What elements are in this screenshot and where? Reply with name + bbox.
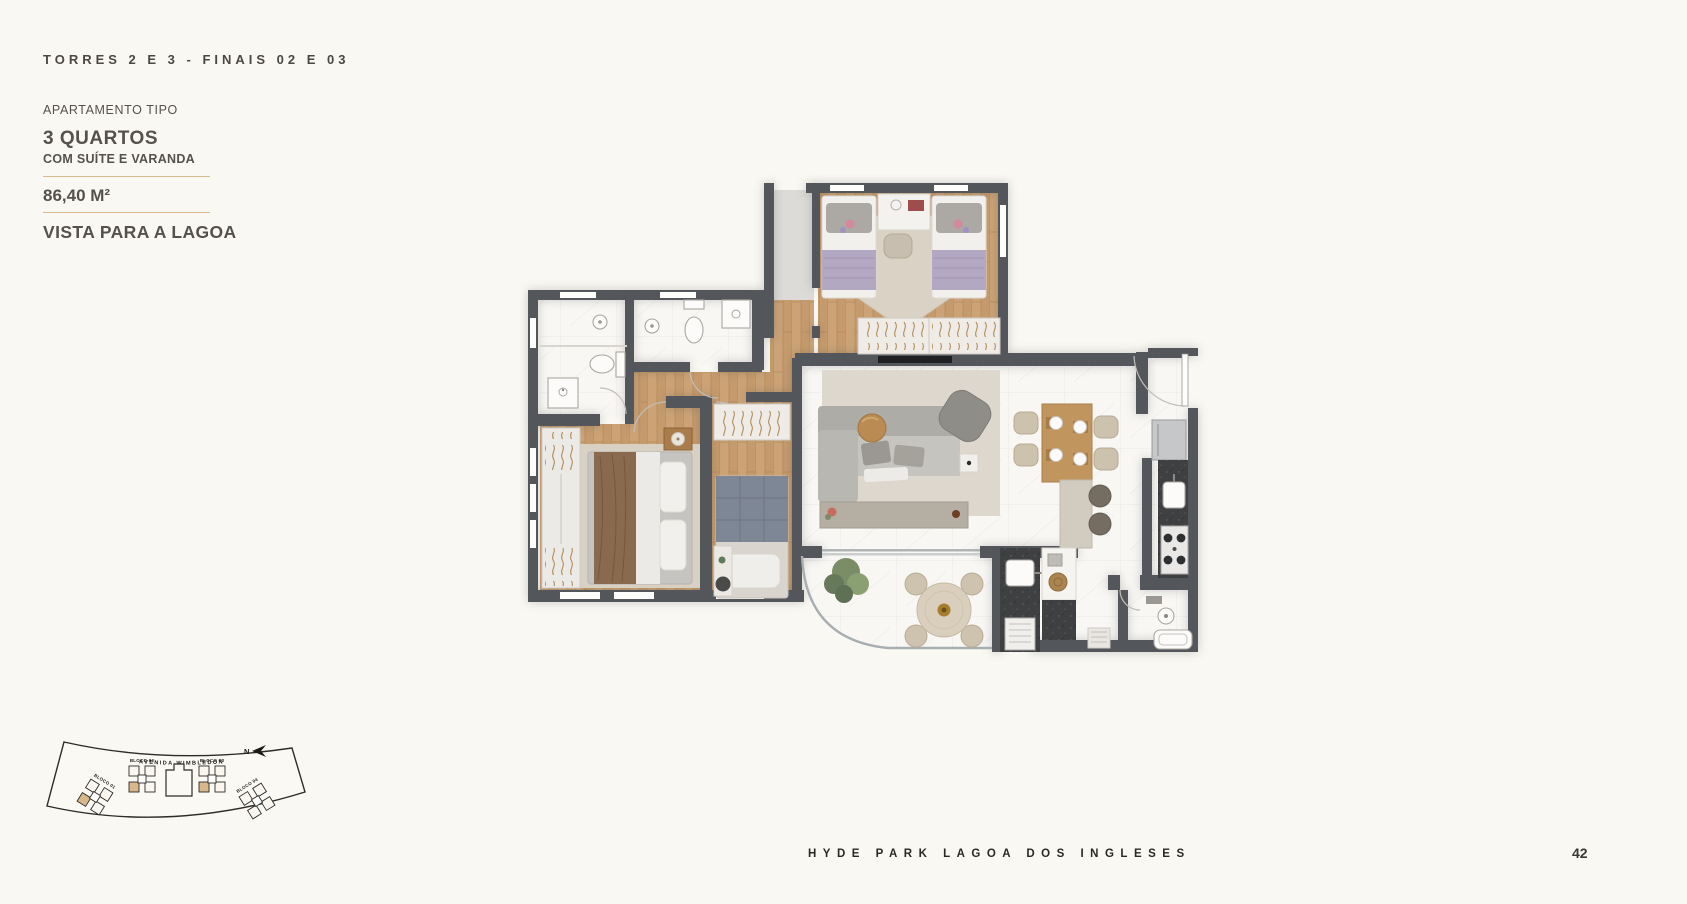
washer (1005, 618, 1035, 650)
toilet-tank (684, 300, 704, 309)
sink-icon (1006, 560, 1034, 586)
page-number: 42 (1572, 845, 1588, 861)
footer-brand: HYDE PARK LAGOA DOS INGLESES (808, 848, 1191, 860)
dining-table (1042, 404, 1092, 482)
entry-door-leaf (1182, 354, 1188, 406)
console-table (820, 502, 968, 528)
brochure-page: { "header": { "kicker": "TORRES 2 E 3 - … (0, 0, 1687, 904)
dining-chair (1094, 448, 1118, 470)
pillow (660, 520, 686, 570)
sink-icon (722, 300, 750, 328)
floorplan (520, 175, 1210, 700)
wardrobe (714, 404, 790, 440)
svg-text:BLOCO 03: BLOCO 03 (200, 758, 225, 763)
view-label: VISTA PARA A LAGOA (43, 222, 237, 243)
desk-chair (884, 234, 912, 258)
master-suite (542, 428, 700, 588)
stool (1089, 485, 1111, 507)
tray (1049, 573, 1067, 591)
desk (714, 546, 732, 596)
fridge (1152, 420, 1186, 460)
sink-icon (548, 378, 578, 408)
toilet-icon (685, 317, 703, 343)
third-bedroom (714, 404, 790, 598)
coffee-maker (1048, 554, 1062, 566)
single-bed (932, 196, 986, 298)
single-bed (822, 196, 876, 298)
stove-icon (1161, 526, 1188, 574)
bathtub-icon (1154, 630, 1192, 649)
dining-chair (1094, 416, 1118, 438)
area-value: 86,40 M² (43, 186, 110, 206)
svg-text:BLOCO 02: BLOCO 02 (130, 758, 155, 763)
dining-chair (1014, 412, 1038, 434)
page-title: 3 QUARTOS (43, 128, 158, 150)
apartment-type-label: APARTAMENTO TIPO (43, 103, 178, 117)
living-room (818, 356, 1000, 528)
pillow (660, 462, 686, 512)
wardrobe (858, 318, 1000, 354)
double-bed (588, 452, 692, 584)
island-counter (1060, 480, 1092, 548)
gold-divider (43, 212, 210, 213)
desk-chair (716, 577, 731, 592)
toilet-icon (590, 355, 614, 373)
sink-icon (1163, 482, 1185, 508)
shower-icon (1146, 596, 1162, 604)
title-subtitle: COM SUÍTE E VARANDA (43, 152, 195, 166)
stool (1089, 513, 1111, 535)
sitemap: AVENIDA WIMBLEDON N BLOCO 01 BLOCO 02 BL… (40, 732, 310, 837)
dining-chair (1014, 444, 1038, 466)
north-label: N (244, 747, 249, 756)
tv (878, 356, 952, 363)
gold-divider (43, 176, 210, 177)
nightstand (664, 428, 692, 450)
toilet-tank (616, 352, 625, 377)
wardrobe (542, 428, 580, 588)
towers-kicker: TORRES 2 E 3 - FINAIS 02 E 03 (43, 52, 350, 67)
